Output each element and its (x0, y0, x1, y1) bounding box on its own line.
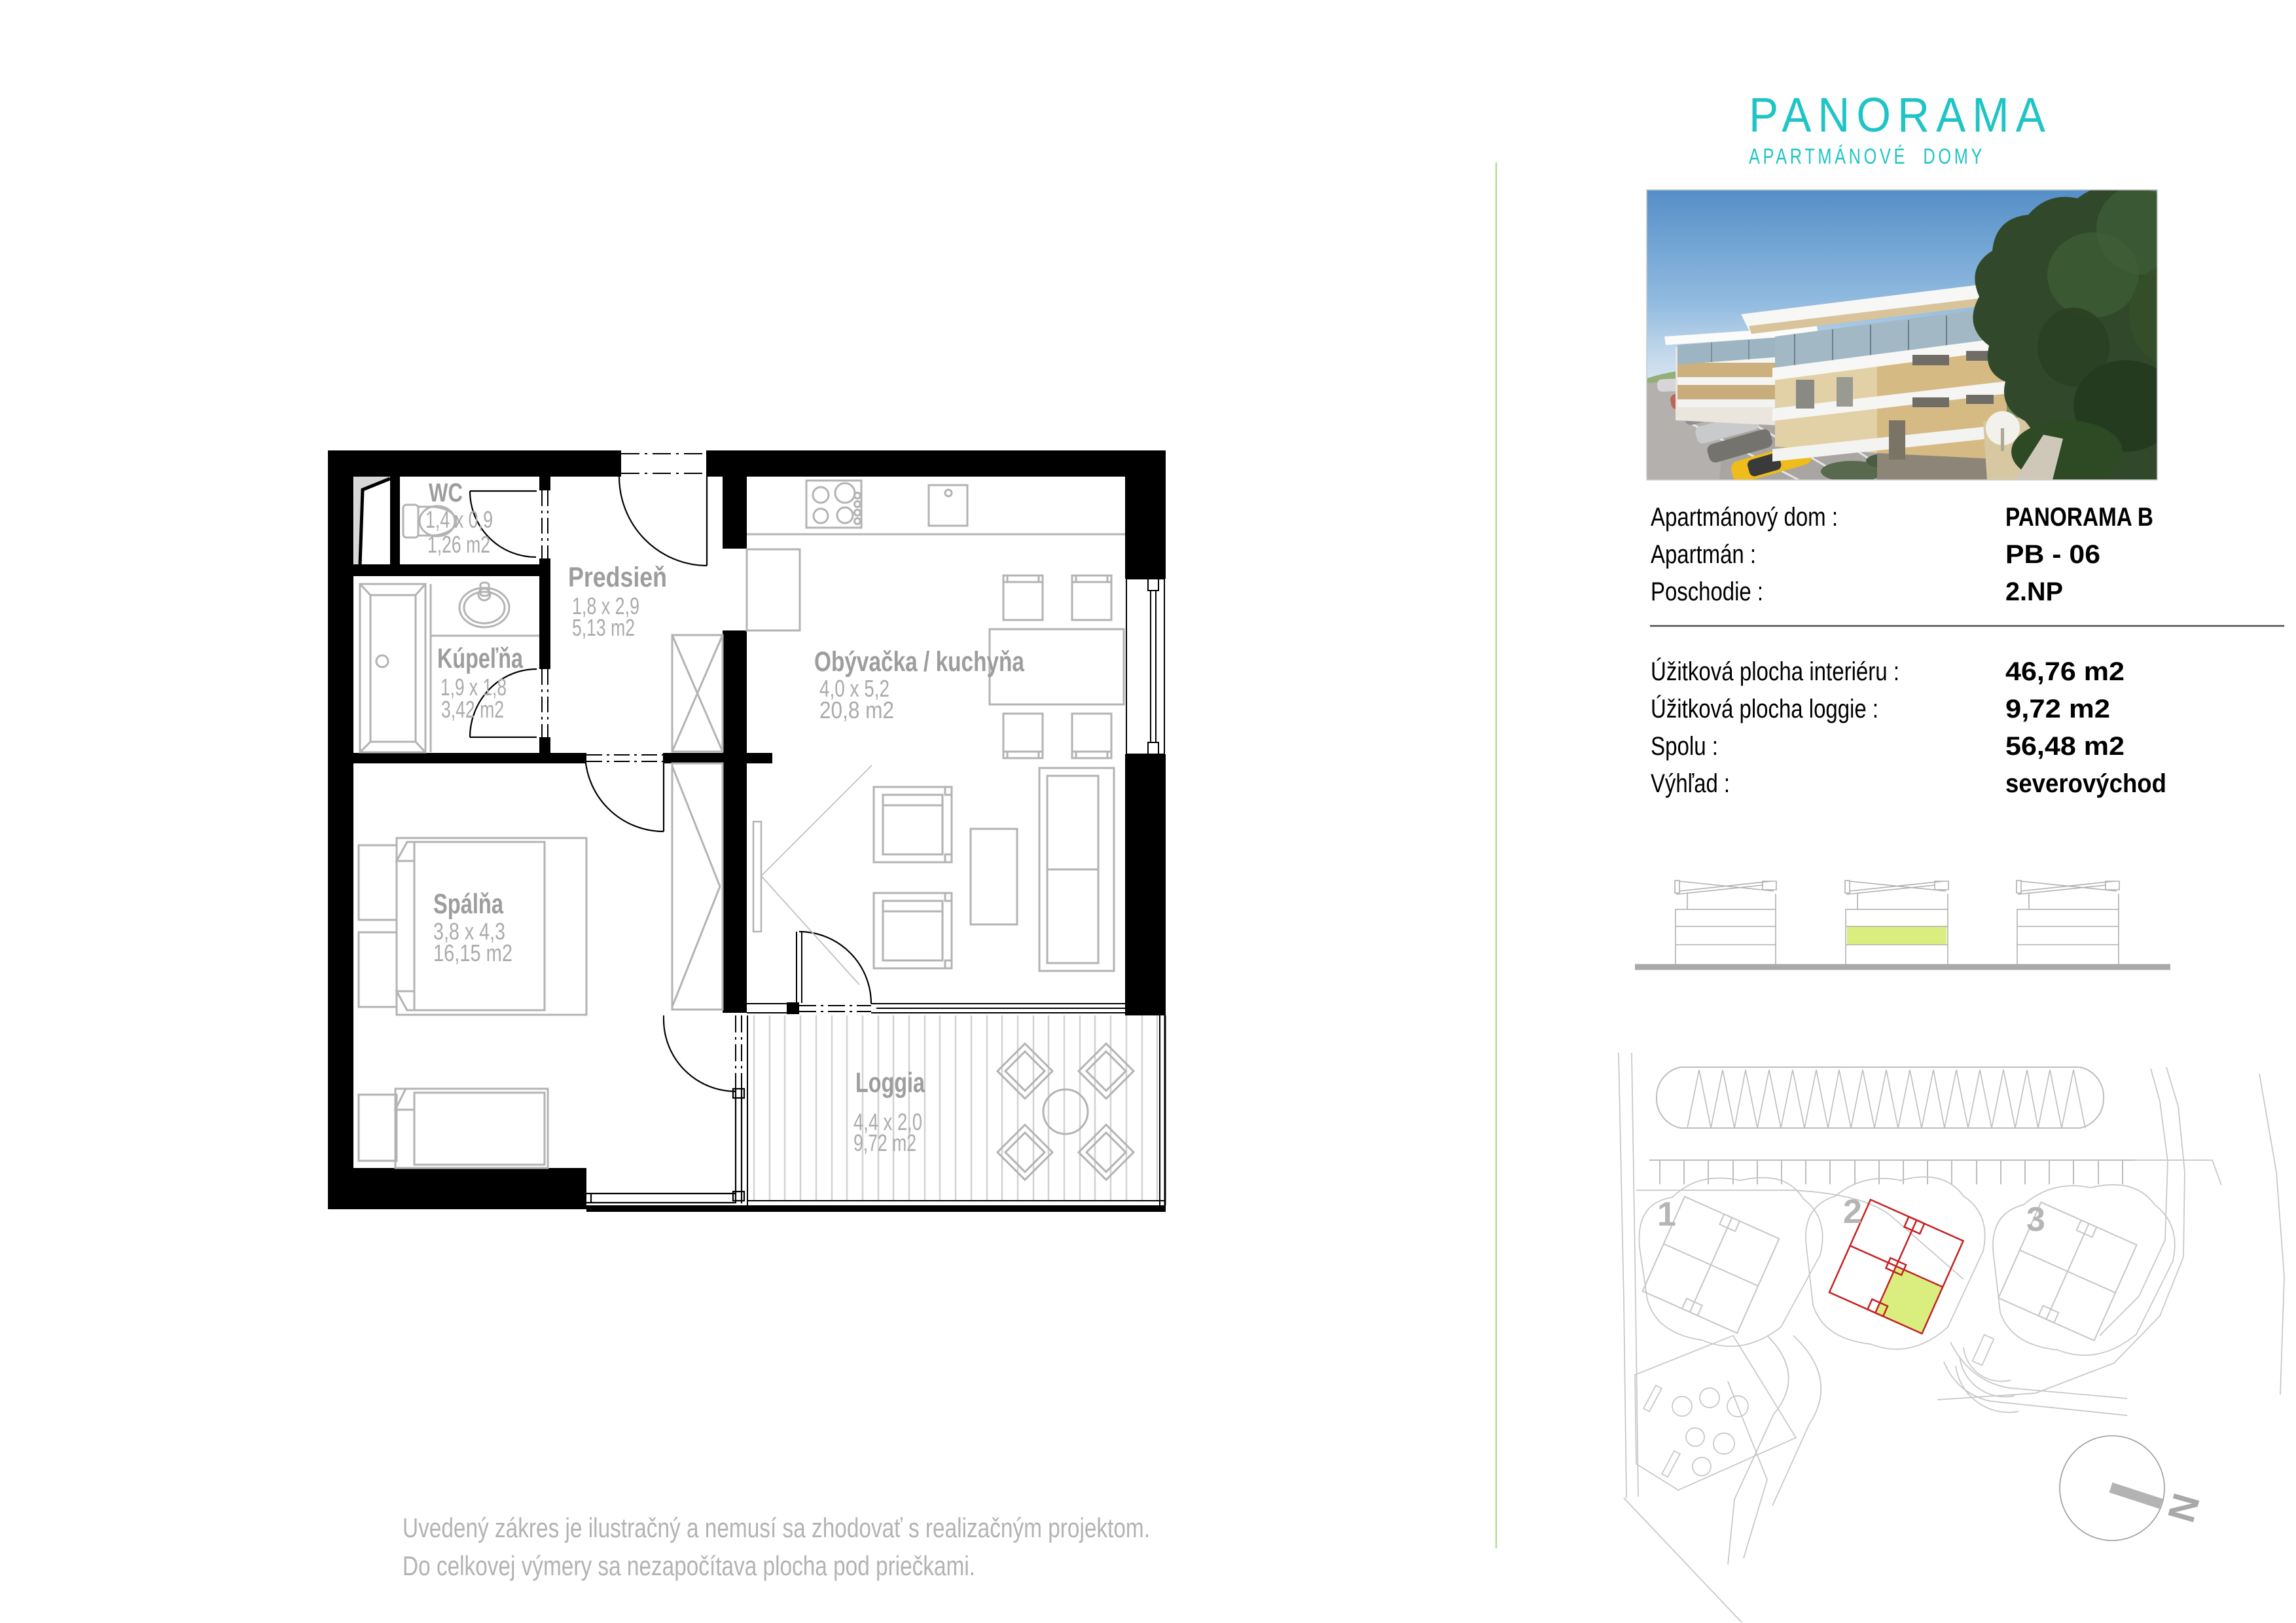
svg-text:Predsieň: Predsieň (568, 562, 667, 593)
svg-text:20,8 m2: 20,8 m2 (819, 697, 894, 723)
svg-text:Spálňa: Spálňa (433, 888, 504, 920)
svg-text:9,72 m2: 9,72 m2 (853, 1129, 916, 1156)
svg-text:WC: WC (429, 479, 463, 507)
svg-text:Uvedený zákres je ilustračný a: Uvedený zákres je ilustračný a nemusí sa… (403, 1512, 1150, 1543)
svg-text:Výhľad :: Výhľad : (1651, 769, 1730, 798)
svg-text:Spolu :: Spolu : (1651, 732, 1718, 761)
svg-text:Kúpeľňa: Kúpeľňa (437, 643, 524, 674)
svg-text:2.NP: 2.NP (2005, 577, 2063, 606)
svg-text:2: 2 (1843, 1193, 1862, 1231)
svg-text:Poschodie :: Poschodie : (1651, 577, 1763, 606)
svg-text:Apartmán :: Apartmán : (1651, 540, 1756, 569)
svg-text:1: 1 (1657, 1195, 1676, 1233)
svg-text:Obývačka / kuchyňa: Obývačka / kuchyňa (814, 646, 1025, 678)
svg-text:16,15 m2: 16,15 m2 (433, 939, 512, 966)
svg-text:PANORAMA: PANORAMA (1749, 88, 2052, 142)
svg-text:APARTMÁNOVÉ DOMY: APARTMÁNOVÉ DOMY (1749, 144, 1985, 168)
svg-text:9,72 m2: 9,72 m2 (2005, 695, 2110, 723)
svg-text:1,26 m2: 1,26 m2 (427, 531, 490, 558)
svg-text:Loggia: Loggia (855, 1067, 925, 1099)
svg-text:3,42 m2: 3,42 m2 (441, 696, 504, 723)
svg-text:Apartmánový dom :: Apartmánový dom : (1651, 503, 1838, 532)
svg-text:46,76 m2: 46,76 m2 (2005, 657, 2125, 686)
svg-text:Úžitková plocha interiéru :: Úžitková plocha interiéru : (1651, 657, 1899, 686)
svg-text:N: N (2159, 1489, 2208, 1527)
svg-text:56,48 m2: 56,48 m2 (2005, 732, 2125, 761)
svg-text:5,13 m2: 5,13 m2 (572, 614, 635, 641)
svg-text:Úžitková plocha loggie :: Úžitková plocha loggie : (1651, 694, 1878, 723)
svg-text:1,4 x 0,9: 1,4 x 0,9 (425, 506, 493, 533)
svg-text:PB - 06: PB - 06 (2005, 540, 2100, 569)
svg-text:PANORAMA B: PANORAMA B (2005, 503, 2153, 532)
svg-text:3: 3 (2026, 1201, 2045, 1239)
svg-text:Do celkovej výmery sa nezapočí: Do celkovej výmery sa nezapočítava ploch… (403, 1550, 975, 1581)
svg-text:severovýchod: severovýchod (2005, 769, 2166, 798)
